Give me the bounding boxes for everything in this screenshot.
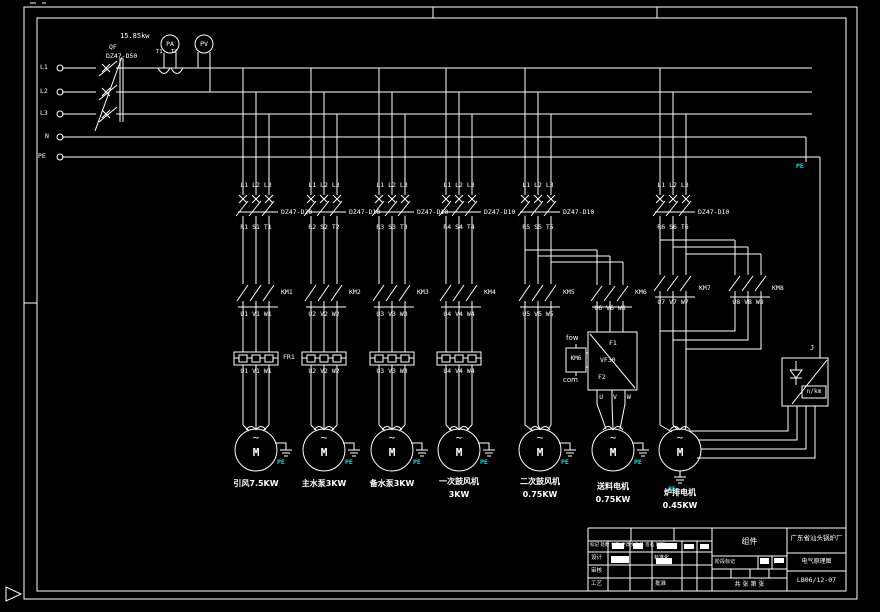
branch6-outlet-terminals: U6 V6 W6 <box>580 305 640 312</box>
branch7-inlet-terminals: R6 S6 T6 <box>643 224 703 231</box>
branch1-lower-terminals: U1 V1 W1 <box>226 368 286 375</box>
fold-mark-triangle <box>6 587 21 601</box>
motor2-sine-icon: ~ <box>314 432 334 443</box>
vfd-forward-terminal: fow <box>566 335 578 342</box>
branch2-inlet-terminals: R2 S2 T2 <box>294 224 354 231</box>
branch3-inlet-terminals: R3 S3 T3 <box>362 224 422 231</box>
branch7-contactor-km7-label: KM7 <box>699 285 711 292</box>
branch3-phase-labels: L1 L2 L3 <box>362 182 422 189</box>
bus-label-l2: L2 <box>40 88 48 95</box>
branch-4-linework <box>437 68 495 471</box>
branch3-contactor-label: KM3 <box>417 289 429 296</box>
branch5-phase-labels: L1 L2 L3 <box>508 182 568 189</box>
motor2-pe-label: PE <box>345 459 353 466</box>
branch1-inlet-terminals: R1 S1 T1 <box>226 224 286 231</box>
branch2-outlet-terminals: U2 V2 W2 <box>294 311 354 318</box>
motor2-m-label: M <box>314 447 334 458</box>
motor7-name-label: 炉排电机 <box>640 489 720 497</box>
branch-2-linework <box>302 68 360 471</box>
ct-label-t1: T1 <box>156 50 163 56</box>
motor4-pe-label: PE <box>480 459 488 466</box>
bus-lines <box>57 65 820 160</box>
vfd-output-terminals: U V W <box>592 394 638 401</box>
motor4-power-label: 3KW <box>419 491 499 499</box>
pe-label-right: PE <box>796 163 804 170</box>
incoming-power-label: 15.85kw <box>120 33 150 40</box>
branch3-lower-terminals: U3 V3 W3 <box>362 368 422 375</box>
motor1-m-label: M <box>246 447 266 458</box>
branch-5-linework <box>518 68 576 471</box>
branch7-phase-labels: L1 L2 L3 <box>643 182 703 189</box>
branch1-relay-label: FR1 <box>283 354 295 361</box>
branch4-phase-labels: L1 L2 L3 <box>429 182 489 189</box>
bus-label-n: N <box>45 133 49 140</box>
motor5-name-label: 二次鼓风机 <box>500 478 580 486</box>
vfd-common-terminal: com <box>563 377 578 384</box>
branch4-contactor-label: KM4 <box>484 289 496 296</box>
controller-tag-label: n/km <box>803 389 825 395</box>
motor3-pe-label: PE <box>413 459 421 466</box>
motor5-sine-icon: ~ <box>530 432 550 443</box>
title-block-drawing-title: 电气原理图 <box>788 559 845 565</box>
vfd-terminal-f1: F1 <box>609 340 617 347</box>
vfd-aux-contact-label: KM6 <box>566 356 586 362</box>
title-block-standardize-label: 标准化 <box>654 556 669 561</box>
branch5-breaker-model: DZ47-D10 <box>563 209 594 216</box>
motor1-pe-label: PE <box>277 459 285 466</box>
branch-1-linework <box>234 68 292 471</box>
branch3-breaker-model: DZ47-D10 <box>417 209 448 216</box>
branch1-outlet-terminals: U1 V1 W1 <box>226 311 286 318</box>
ct-label-t2: T2 <box>171 50 178 56</box>
branch5-outlet-terminals: U5 V5 W5 <box>508 311 568 318</box>
branch7-contactor-km8-label: KM8 <box>772 285 784 292</box>
motor4-sine-icon: ~ <box>449 432 469 443</box>
motor4-m-label: M <box>449 447 469 458</box>
branch2-breaker-model: DZ47-D10 <box>349 209 380 216</box>
branch7-outlet-terminals-km7: U7 V7 W7 <box>643 299 703 306</box>
branch4-inlet-terminals: R4 S4 T4 <box>429 224 489 231</box>
branch3-outlet-terminals: U3 V3 W3 <box>362 311 422 318</box>
title-block-sheet-label: 共 张 第 张 <box>713 582 786 588</box>
voltmeter-label: PV <box>196 41 212 48</box>
vfd-model-label: VF30 <box>600 357 616 364</box>
motor3-m-label: M <box>382 447 402 458</box>
motor7-power-label: 0.45KW <box>640 502 720 510</box>
branch5-contactor-label: KM5 <box>563 289 575 296</box>
cad-schematic: L1 L2 L3 N PE 15.85kw QF DZ47-D50 PA PV … <box>0 0 880 612</box>
title-block-check-label: 审核 <box>591 569 602 575</box>
branch4-outlet-terminals: U4 V4 W4 <box>429 311 489 318</box>
branch5-inlet-terminals: R5 S5 T5 <box>508 224 568 231</box>
motor4-name-label: 一次鼓风机 <box>419 478 499 486</box>
motor5-m-label: M <box>530 447 550 458</box>
ammeter-label: PA <box>162 41 178 48</box>
title-block-drawing-no: LB06/12-07 <box>788 577 845 584</box>
motor5-power-label: 0.75KW <box>500 491 580 499</box>
motor7-m-label: M <box>670 447 690 458</box>
branch7-breaker-model: DZ47-D10 <box>698 209 729 216</box>
title-block-part-label: 组件 <box>713 538 786 546</box>
motor5-pe-label: PE <box>561 459 569 466</box>
motor7-sine-icon: ~ <box>670 432 690 443</box>
title-block-approve-label: 批准 <box>655 582 666 588</box>
bus-label-l3: L3 <box>40 110 48 117</box>
motor3-sine-icon: ~ <box>382 432 402 443</box>
branch2-lower-terminals: U2 V2 W2 <box>294 368 354 375</box>
branch-7-linework <box>653 68 770 483</box>
branch4-lower-terminals: U4 V4 W4 <box>429 368 489 375</box>
branch2-phase-labels: L1 L2 L3 <box>294 182 354 189</box>
branch1-breaker-model: DZ47-D20 <box>281 209 312 216</box>
branch-3-linework <box>370 68 428 471</box>
vfd-terminal-f2: F2 <box>598 374 606 381</box>
branch1-phase-labels: L1 L2 L3 <box>226 182 286 189</box>
branch2-contactor-label: KM2 <box>349 289 361 296</box>
motor6-m-label: M <box>603 447 623 458</box>
branch1-contactor-label: KM1 <box>281 289 293 296</box>
title-block-stage-label: 阶段标记 <box>715 560 735 565</box>
bus-label-pe: PE <box>38 153 46 160</box>
branch6-contactor-label: KM6 <box>635 289 647 296</box>
bus-label-l1: L1 <box>40 64 48 71</box>
branch7-outlet-terminals-km8: U8 V8 W8 <box>718 299 778 306</box>
qf-breaker-model: DZ47-D50 <box>106 53 137 60</box>
motor6-sine-icon: ~ <box>603 432 623 443</box>
title-block-company: 广东省汕头锅炉厂 <box>788 535 845 542</box>
schematic-linework <box>0 0 880 612</box>
branch4-breaker-model: DZ47-D10 <box>484 209 515 216</box>
motor6-pe-label: PE <box>634 459 642 466</box>
controller-junction-label: J <box>810 345 814 352</box>
title-block-process-label: 工艺 <box>591 582 602 588</box>
motor1-sine-icon: ~ <box>246 432 266 443</box>
title-block-design-label: 设计 <box>591 556 602 562</box>
title-block-rev-headers: 标记 处数 分区 更改文件号 签名 日期 <box>590 544 710 549</box>
qf-breaker-label: QF <box>109 44 117 51</box>
